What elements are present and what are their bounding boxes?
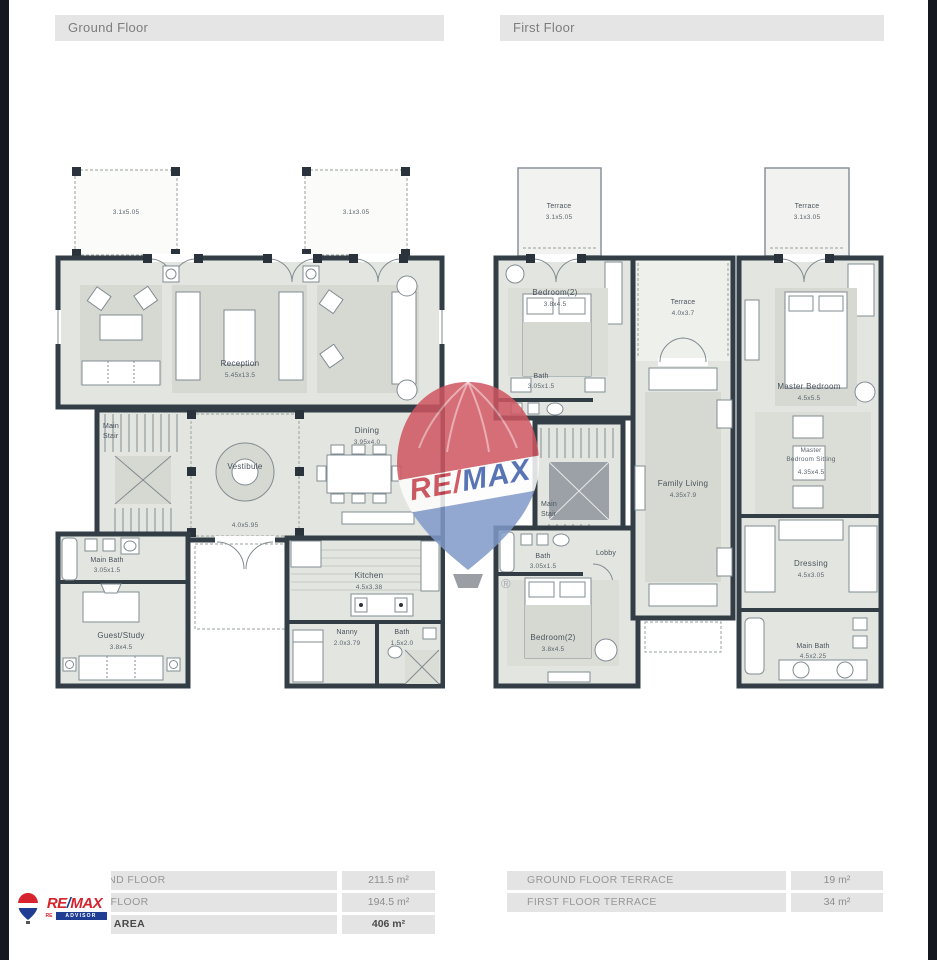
first-right-wing: Master Bedroom 4.5x5.5 Master Bedroom Si… [739,254,881,686]
row-value: 34 m² [791,893,883,912]
room-dims: 4.35x4.5 [798,469,825,476]
logo-max: MAX [70,895,102,912]
room-dims: 1.5x2.0 [391,640,414,647]
logo-advisor-bar: RE ADVISOR [43,912,107,920]
room-name-line1: Main [103,423,119,430]
room-name: Terrace [547,203,572,210]
ground-bottomleft-wing: Main Bath 3.05x1.5 Guest/Study 3.8x4.5 [58,534,188,686]
room-dims: 2.0x3.79 [334,640,361,647]
room-name: Terrace [795,203,820,210]
first-family-living: Family Living 4.35x7.9 [635,368,732,606]
remax-balloon-icon [16,892,40,924]
room-name: Bedroom(2) [530,633,575,642]
room-name: Nanny [336,629,358,636]
row-value: 19 m² [791,871,883,890]
ground-terrace-right: 3.1x3.05 [302,167,410,258]
room-name: Bath [394,629,409,636]
registered-mark: ® [501,576,511,588]
balloon-basket [453,574,483,588]
logo-wordmark: RE/MAX [47,897,102,911]
remax-advisor-logo: RE/MAX RE ADVISOR [11,869,111,947]
room-dims: 3.1x3.05 [794,214,821,221]
room-dims: 3.8x4.5 [544,301,567,308]
first-floor-plan: Terrace 3.1x5.05 Terrace 3.1x3.05 Bedroo… [493,160,885,690]
room-name: Dining [355,426,379,435]
room-name: Reception [221,359,260,368]
room-name-line1: Master [800,447,822,454]
room-name: Bedroom(2) [532,288,577,297]
room-dims: 4.5x3.38 [356,584,383,591]
row-value: 194.5 m² [342,893,435,912]
ground-porch-doors [195,536,295,629]
room-name: Terrace [671,299,696,306]
room-name: Family Living [658,479,709,488]
room-name: Kitchen [355,571,384,580]
logo-advisor-label: ADVISOR [56,912,107,920]
room-name-line2: Bedroom Sitting [786,456,835,463]
room-dims: 4.5x2.25 [800,653,827,660]
ground-terrace-left: 3.1x5.05 [72,167,180,258]
room-name: Master Bedroom [777,382,840,391]
room-dims: 4.0x3.7 [672,310,695,317]
room-dims: 4.5x3.05 [798,572,825,579]
room-name-line2: Stair [103,433,119,440]
first-center-wing: Terrace 4.0x3.7 Family Living 4.35x7.9 [633,258,733,652]
table-row: GROUND FLOOR 211.5 m² [55,871,435,890]
first-terrace-left: Terrace 3.1x5.05 [518,168,601,256]
room-name: Dressing [794,559,828,568]
table-row: FIRST FLOOR 194.5 m² [55,893,435,912]
room-name: Vestibule [227,462,262,471]
table-row: FIRST FLOOR TERRACE 34 m² [507,893,883,912]
room-dims: 4.5x5.5 [798,395,821,402]
left-edge-bar [0,0,9,960]
room-dims: 3.8x4.5 [110,644,133,651]
room-dims: 3.8x4.5 [542,646,565,653]
logo-re: RE [47,895,67,912]
room-dims: 3.95x4.0 [354,439,381,446]
logo-bar-re: RE [43,912,56,920]
table-row: GROUND FLOOR TERRACE 19 m² [507,871,883,890]
ground-floor-header: Ground Floor [55,15,444,41]
first-terrace-center: Terrace 4.0x3.7 [636,261,730,366]
area-table-floors: GROUND FLOOR 211.5 m² FIRST FLOOR 194.5 … [55,871,435,937]
first-terrace-right: Terrace 3.1x3.05 [765,168,849,256]
room-name: Main Bath [90,557,123,564]
terrace-dims: 3.1x3.05 [343,209,370,216]
row-value: 406 m² [342,915,435,934]
terrace-dims: 3.1x5.05 [113,209,140,216]
first-floor-header: First Floor [500,15,884,41]
room-name: Main Bath [796,643,829,650]
room-dims: 4.35x7.9 [670,492,697,499]
room-dims: 5.45x13.5 [225,372,256,379]
row-label: GROUND FLOOR TERRACE [507,871,786,890]
room-dims: 3.05x1.5 [94,567,121,574]
remax-balloon-watermark: RE/MAX ® [385,376,551,588]
area-table-terraces: GROUND FLOOR TERRACE 19 m² FIRST FLOOR T… [507,871,883,915]
room-dims: 3.1x5.05 [546,214,573,221]
row-label: FIRST FLOOR TERRACE [507,893,786,912]
row-value: 211.5 m² [342,871,435,890]
room-dims: 4.0x5.95 [232,522,259,529]
floorplan-sheet: Ground Floor First Floor 3.1x5.05 3.1x3.… [0,0,937,960]
room-name: Guest/Study [97,631,144,640]
right-edge-bar [928,0,937,960]
table-row-total: TOTAL AREA 406 m² [55,915,435,934]
first-lobby: Lobby [596,550,616,557]
first-master-sitting: Master Bedroom Sitting 4.35x4.5 [755,412,871,514]
